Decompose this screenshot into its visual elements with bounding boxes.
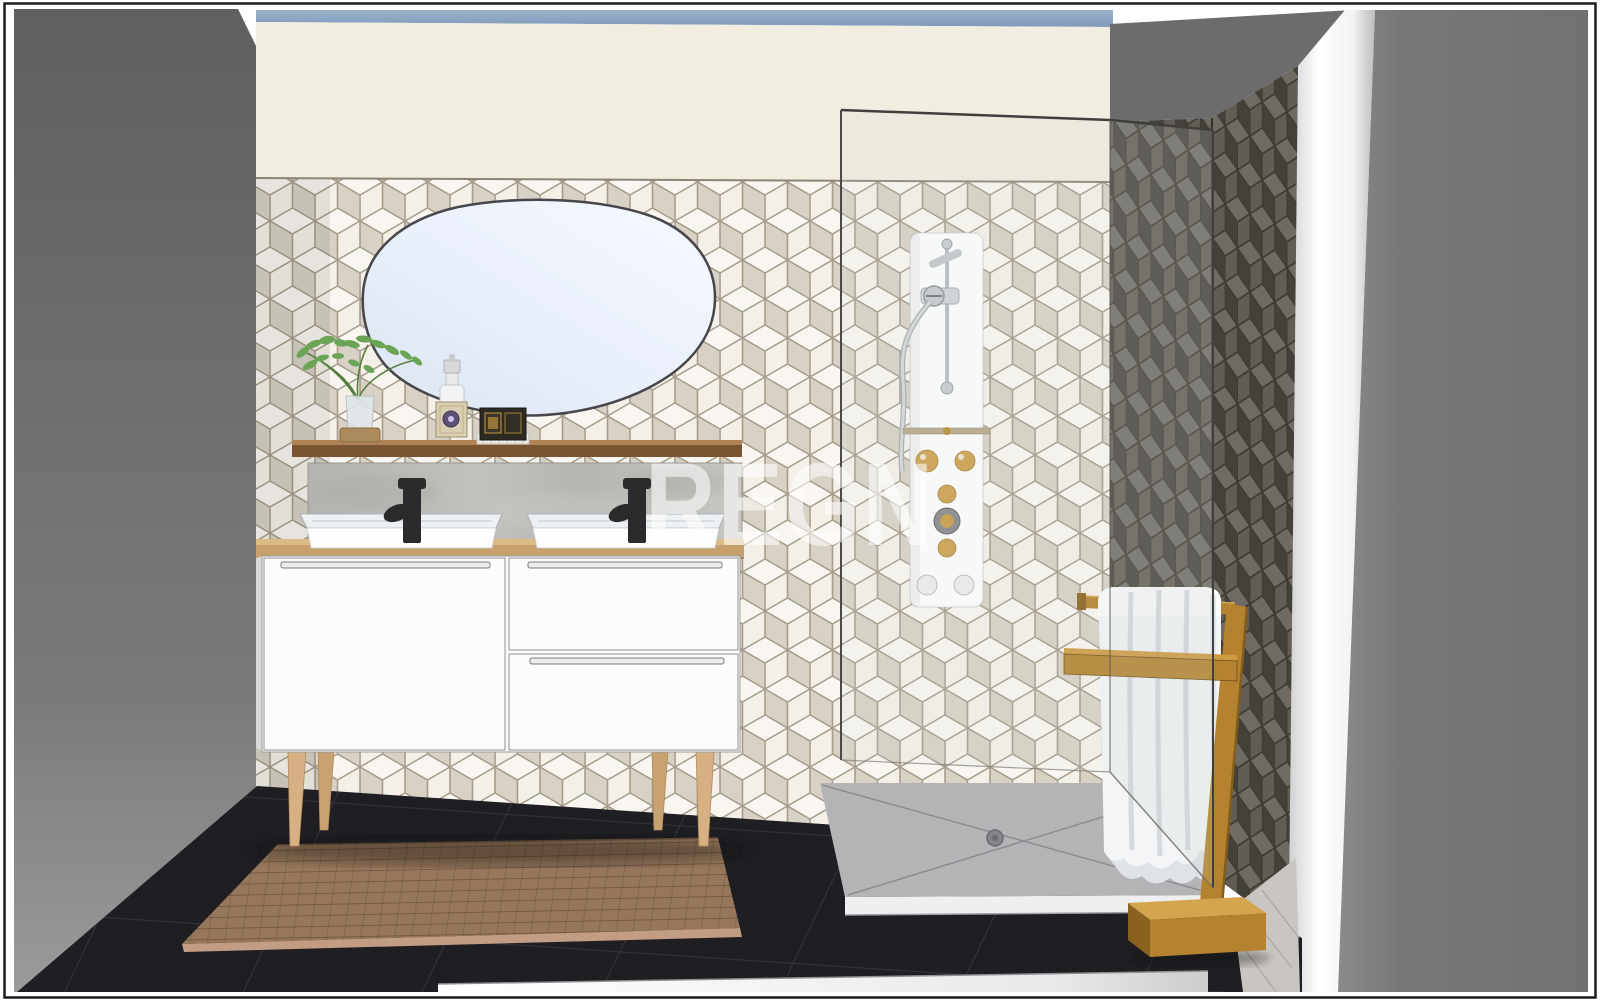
door-handle bbox=[281, 562, 490, 568]
decor-box bbox=[477, 408, 529, 444]
watermark-text: REGN bbox=[645, 439, 935, 571]
drawer-bottom-handle bbox=[530, 658, 724, 664]
vase-base bbox=[340, 428, 380, 442]
drawer-top bbox=[509, 558, 738, 650]
vanity-cabinet bbox=[256, 556, 740, 752]
soap-card bbox=[436, 402, 467, 437]
glass-side-pane bbox=[1110, 120, 1213, 888]
vanity-shadow bbox=[250, 837, 750, 865]
scene-canvas: REGN bbox=[0, 0, 1600, 1001]
right-wall bbox=[1338, 10, 1588, 992]
cabinet-door bbox=[264, 558, 505, 750]
drawer-bottom bbox=[509, 654, 738, 750]
plant-vase bbox=[346, 396, 374, 432]
rack-base bbox=[1128, 897, 1270, 966]
bathroom-3d-rendering: REGN bbox=[0, 0, 1600, 1001]
